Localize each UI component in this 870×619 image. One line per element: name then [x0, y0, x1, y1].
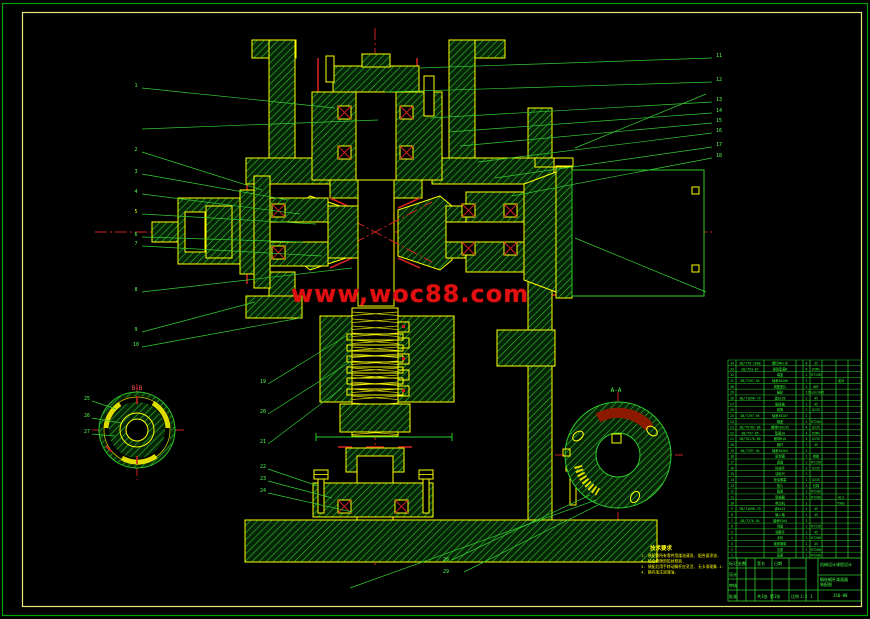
bom-cell: 26 [730, 408, 734, 412]
callout-number: 18 [716, 153, 722, 159]
bom-cell: 45 [814, 530, 818, 534]
right-motor-assembly-shape [524, 172, 556, 292]
base-plate-shape [245, 520, 657, 562]
bom-cell: 端盖 [777, 372, 784, 377]
bom-cell: 21 [730, 437, 734, 441]
bom-cell: 15 [730, 472, 734, 476]
bom-cell: 45 [814, 542, 818, 546]
main-assembly-shape [528, 272, 552, 520]
bom-cell: 1 [806, 420, 808, 424]
bom-table[interactable]: 34GB/T70-2000螺钉M6x1663533GB/T93-87弹簧垫圈66… [728, 360, 861, 558]
bom-cell: 垫片 [777, 483, 783, 488]
callout-number: 15 [716, 118, 722, 124]
bom-cell: 蜗轮 [777, 390, 784, 395]
bom-cell: 34 [730, 362, 734, 366]
bom-cell: 蜗轮轴 [775, 401, 785, 406]
worm-assembly-shape [398, 316, 454, 402]
main-assembly-shape [400, 146, 413, 159]
bom-cell: 10 [730, 501, 734, 505]
tb-sign-label: 签名 [757, 560, 765, 566]
bom-cell: 1 [806, 478, 808, 482]
bom-cell: 垫圈10 [775, 430, 785, 435]
bom-cell: 23 [730, 426, 734, 430]
bom-cell: 1 [806, 525, 808, 529]
main-assembly-shape [362, 54, 390, 67]
bom-cell: 2 [806, 542, 808, 546]
bom-cell: 螺钉M6x16 [772, 361, 788, 366]
bom-cell: 底座 [777, 553, 784, 558]
leader-line [142, 88, 335, 108]
bom-cell: 13 [730, 484, 734, 488]
bom-cell: 4 [806, 437, 808, 441]
bom-cell: 1 [806, 373, 808, 377]
bom-cell: 螺栓M10x35 [771, 425, 789, 430]
bom-cell: GB/T70-2000 [739, 362, 760, 366]
main-assembly-shape [326, 56, 334, 82]
callout-number: 6 [134, 232, 137, 238]
bom-cell: 3 [731, 542, 733, 546]
bom-cell: 手轮 [777, 535, 784, 540]
callout-number: 28 [443, 557, 449, 563]
bom-cell: 1 [806, 554, 808, 558]
bom-cell: 放油螺塞 [774, 477, 788, 482]
main-assembly-shape [338, 146, 351, 159]
notes-line: 2. 啮合侧隙用铅丝检验. [641, 559, 684, 564]
bom-cell: 轴承30207 [772, 413, 788, 418]
bom-cell: 1 [806, 443, 808, 447]
bom-cell: 24 [730, 420, 734, 424]
callout-number: 29 [443, 569, 449, 575]
bom-cell: 65Mn [812, 367, 820, 371]
bom-cell: 28 [730, 396, 734, 400]
tb-drawing-no: JSQ-00 [833, 593, 848, 598]
bom-cell: 2 [806, 414, 808, 418]
left-shaft-assembly-shape [272, 246, 285, 259]
bom-cell: 电动机 [775, 500, 785, 505]
bom-cell: 4 [806, 431, 808, 435]
bom-cell: 1 [806, 530, 808, 534]
callout-number: 20 [260, 409, 266, 415]
bom-cell: 轴承30206 [772, 378, 788, 383]
tb-title-line2: 装配图 [820, 581, 832, 587]
bom-cell: Q235 [812, 426, 820, 430]
bom-cell: 密封圈 [775, 454, 785, 459]
bom-cell: 5 [731, 530, 733, 534]
bom-cell: 2 [806, 449, 808, 453]
main-assembly-shape [333, 66, 419, 92]
left-shaft-assembly-shape [328, 206, 358, 258]
bom-cell: 螺母M10 [774, 436, 786, 441]
callout-number: 16 [716, 128, 722, 134]
callout-number: 14 [716, 108, 722, 114]
leader-line [268, 388, 342, 444]
bom-cell: 1 [806, 495, 808, 499]
bom-cell: 成对 [838, 378, 845, 383]
bom-cell: 17 [730, 461, 734, 465]
bom-cell: 1 [806, 396, 808, 400]
left-shaft-assembly-shape [152, 222, 180, 242]
main-assembly-shape [528, 108, 552, 166]
bom-cell: 石棉 [813, 483, 819, 488]
leader-line [478, 133, 712, 162]
leader-line [575, 94, 706, 148]
callout-number: 9 [134, 327, 137, 333]
bom-cell: 45 [814, 513, 818, 517]
bom-cell: 锁紧螺母 [774, 541, 787, 546]
bom-cell: 20 [730, 443, 734, 447]
cad-drawing-page: B-B A-A 12345678910111213141516171819202… [0, 0, 870, 619]
main-assembly-shape [356, 92, 396, 180]
bom-cell: HT150 [811, 525, 821, 529]
bom-cell: 2 [806, 466, 808, 470]
bom-cell: 6 [806, 367, 808, 371]
bom-cell: 2 [806, 408, 808, 412]
bom-cell: 2 [806, 379, 808, 383]
leader-line [142, 302, 255, 332]
worm-side-plugs-shape [402, 389, 405, 392]
right-motor-assembly-shape [504, 242, 517, 255]
tb-qty-value: 1 [810, 594, 813, 599]
bom-cell: 1 [806, 501, 808, 505]
bom-cell: Q235 [812, 466, 820, 470]
bom-cell: 16 [730, 466, 734, 470]
technical-notes: 技术要求 1. 装配前所有零件用煤油清洗, 配合面涂油. 2. 啮合侧隙用铅丝检… [641, 544, 724, 575]
callout-number: 25 [84, 396, 90, 402]
main-assembly-shape [449, 40, 475, 178]
watermark-text: www,woc88.com [291, 282, 529, 306]
notes-line: 3. 装配后用手转动蜗杆应灵活, 无卡滞现象-1. [641, 564, 724, 569]
bom-cell: HT200 [811, 490, 821, 494]
main-assembly-shape [497, 330, 555, 366]
bom-cell: 45 [814, 443, 818, 447]
callout-number: 5 [134, 209, 137, 215]
callout-number: 27 [84, 429, 90, 435]
bom-cell: 蜗杆 [777, 442, 784, 447]
callout-number: 3 [134, 169, 137, 175]
callout-number: 24 [260, 488, 266, 494]
left-shaft-assembly-shape [254, 176, 270, 288]
callout-number: 23 [260, 476, 266, 482]
bom-cell: GB/T97-85 [741, 431, 758, 435]
callout-number: 2 [134, 147, 137, 153]
callout-number: 10 [133, 342, 139, 348]
bom-cell: 08F [813, 385, 819, 389]
callout-number: 17 [716, 142, 722, 148]
tb-sheet: 共1张 第1张 [757, 593, 780, 599]
bom-cell: 2 [806, 519, 808, 523]
bom-cell: Q235 [812, 437, 820, 441]
bom-cell: 18 [730, 455, 734, 459]
tb-designer-label: 设计 [729, 571, 737, 577]
right-motor-assembly-shape [462, 204, 475, 217]
bom-cell: 31 [730, 379, 734, 383]
bom-cell: 箱盖 [777, 489, 784, 494]
bom-cell: 1 [806, 472, 808, 476]
left-shaft-assembly [152, 176, 358, 288]
bom-cell: 12 [730, 490, 734, 494]
callout-number: 13 [716, 97, 722, 103]
bom-cell: 4 [806, 426, 808, 430]
main-assembly-shape [424, 76, 434, 116]
bom-cell: HT200 [811, 420, 821, 424]
bom-cell: 25 [730, 414, 734, 418]
tb-auditor-label: 审核 [729, 582, 737, 588]
bom-cell: 1 [806, 548, 808, 552]
bom-cell: 9 [731, 507, 733, 511]
leader-line [142, 152, 262, 190]
bom-cell: 29 [730, 391, 734, 395]
bom-cell: GB/T6170-86 [739, 437, 760, 441]
left-shaft-assembly-shape [185, 212, 205, 252]
callout-number: 19 [260, 379, 266, 385]
bom-cell: 32 [730, 373, 734, 377]
bom-cell: 键8x28 [775, 395, 786, 400]
bom-cell: Q235 [812, 408, 820, 412]
notes-title: 技术要求 [650, 544, 673, 552]
callout-number: 11 [716, 53, 722, 59]
tb-count-label: 处数 [738, 560, 746, 566]
leader-line [448, 113, 712, 132]
bom-cell: 11 [730, 495, 734, 499]
leader-line [142, 318, 300, 347]
tb-approver-label: 批准 [729, 593, 737, 599]
bom-cell: 闷盖 [777, 524, 784, 529]
bom-cell: 19 [730, 449, 734, 453]
title-block: 标记 处数 签名 日期 设计 审核 批准 比例 1:2 1 机械设计课程设计 蜗… [728, 558, 861, 601]
bom-cell: 橡胶 [813, 454, 820, 459]
bom-cell: HT200 [811, 548, 821, 552]
bom-cell: 键6x22 [775, 506, 786, 511]
bom-cell: 1 [806, 507, 808, 511]
bom-cell: 4 [731, 536, 733, 540]
callout-number: 26 [84, 413, 90, 419]
bom-cell: GB/T1096-79 [739, 396, 760, 400]
bom-cell: 油标尺 [775, 471, 785, 476]
callout-number: 7 [134, 241, 137, 247]
bom-cell: GB/T93-87 [741, 367, 758, 371]
worm-assembly-shape [313, 483, 433, 517]
bom-cell: 6 [806, 362, 808, 366]
bom-cell: 45 [814, 402, 818, 406]
left-shaft-assembly-shape [270, 222, 328, 242]
bom-cell: 7 [731, 519, 733, 523]
bom-cell: 1 [731, 554, 733, 558]
bom-cell: 35 [814, 362, 818, 366]
bom-cell: 14 [730, 478, 734, 482]
right-motor-assembly-shape [462, 242, 475, 255]
callout-number: 22 [260, 464, 266, 470]
main-assembly-shape [398, 196, 452, 270]
bom-cell: GB/T5782-86 [739, 426, 760, 430]
bom-cell: ZCuSn10P1 [807, 391, 824, 395]
main-assembly-shape [269, 40, 295, 178]
bom-cell: GB/T276-94 [740, 519, 759, 523]
bom-cell: 调整环 [775, 529, 785, 534]
tb-date-label: 日期 [774, 560, 782, 566]
bom-cell: 支座 [777, 547, 784, 552]
bom-cell: 8 [731, 513, 733, 517]
bom-cell: HL3 [838, 495, 844, 499]
right-motor-assembly-shape [504, 204, 517, 217]
notes-line: 1. 装配前所有零件用煤油清洗, 配合面涂油. [641, 553, 719, 558]
bom-cell: GB/T297-94 [740, 379, 759, 383]
callout-number: 12 [716, 77, 722, 83]
bom-cell: 45 [814, 396, 818, 400]
bom-cell: GB/T297-94 [740, 414, 759, 418]
bom-cell: 轴承6204 [773, 518, 787, 523]
section-view-aa: A-A [563, 387, 671, 508]
bom-cell: 2 [806, 455, 808, 459]
bom-cell: 轴承30204 [772, 448, 788, 453]
bom-cell: HT200 [811, 495, 821, 499]
bom-cell: HT200 [811, 536, 821, 540]
right-motor-assembly-shape [572, 170, 704, 296]
bom-cell: HT150 [811, 373, 821, 377]
notes-line: 4. 箱内加注润滑油. [641, 570, 677, 575]
leader-line [460, 123, 712, 146]
bom-cell: 挡油环 [775, 465, 785, 470]
worm-side-plugs-shape [402, 325, 405, 328]
bom-cell: 透盖 [777, 460, 784, 465]
bom-cell: 箱座 [777, 419, 784, 424]
section-view-bb: B-B [99, 385, 175, 468]
bom-cell: HT150 [811, 461, 821, 465]
tb-scale-label: 比例 [791, 593, 799, 599]
base-plate [245, 520, 657, 562]
main-assembly-shape [338, 106, 351, 119]
section-view-aa-shape [596, 433, 640, 477]
cad-canvas[interactable]: B-B A-A 12345678910111213141516171819202… [0, 0, 870, 619]
callout-number: 4 [134, 189, 137, 195]
worm-assembly-shape [340, 404, 410, 432]
bom-cell: 1 [806, 484, 808, 488]
bom-cell: 输入轴 [775, 512, 785, 517]
callout-number: 21 [260, 439, 266, 445]
section-label-aa: A-A [611, 387, 622, 394]
bom-cell: 套筒 [777, 407, 783, 412]
bom-cell: 2 [731, 548, 733, 552]
bom-cell: 联轴器 [775, 494, 785, 499]
bom-cell: GB/T1096-79 [739, 507, 760, 511]
callout-number: 8 [134, 287, 137, 293]
leader-line [268, 469, 318, 486]
tb-mark-label: 标记 [729, 560, 737, 566]
bom-cell: 27 [730, 402, 734, 406]
bom-cell: Y90S [837, 501, 845, 505]
tb-company: 机械设计课程设计 [820, 561, 852, 567]
bom-cell: 30 [730, 385, 734, 389]
bom-cell: 6 [731, 525, 733, 529]
bom-cell: HT200 [811, 554, 821, 558]
bom-cell: 33 [730, 367, 734, 371]
left-shaft-assembly-shape [240, 190, 254, 274]
bom-cell: Q235 [812, 478, 820, 482]
tb-scale-value: 1:2 [800, 594, 808, 599]
callout-number: 1 [134, 83, 137, 89]
bom-cell: 1 [806, 402, 808, 406]
bom-cell: 1 [806, 513, 808, 517]
bom-cell: 65Mn [812, 431, 820, 435]
bom-cell: 1 [806, 536, 808, 540]
worm-side-plugs-shape [402, 357, 405, 360]
bom-cell: 1 [806, 461, 808, 465]
bom-cell: 调整垫片 [774, 384, 787, 389]
bom-cell: GB/T297-94 [740, 449, 759, 453]
worm-assembly-shape [395, 500, 408, 513]
bom-cell: 弹簧垫圈6 [773, 366, 788, 371]
section-view-bb-shape [126, 419, 148, 441]
bom-cell: 45 [814, 507, 818, 511]
bom-cell: 2 [806, 385, 808, 389]
main-assembly-shape [400, 106, 413, 119]
section-label-bb: B-B [132, 385, 143, 392]
bom-cell: 1 [806, 490, 808, 494]
bom-cell: 22 [730, 431, 734, 435]
